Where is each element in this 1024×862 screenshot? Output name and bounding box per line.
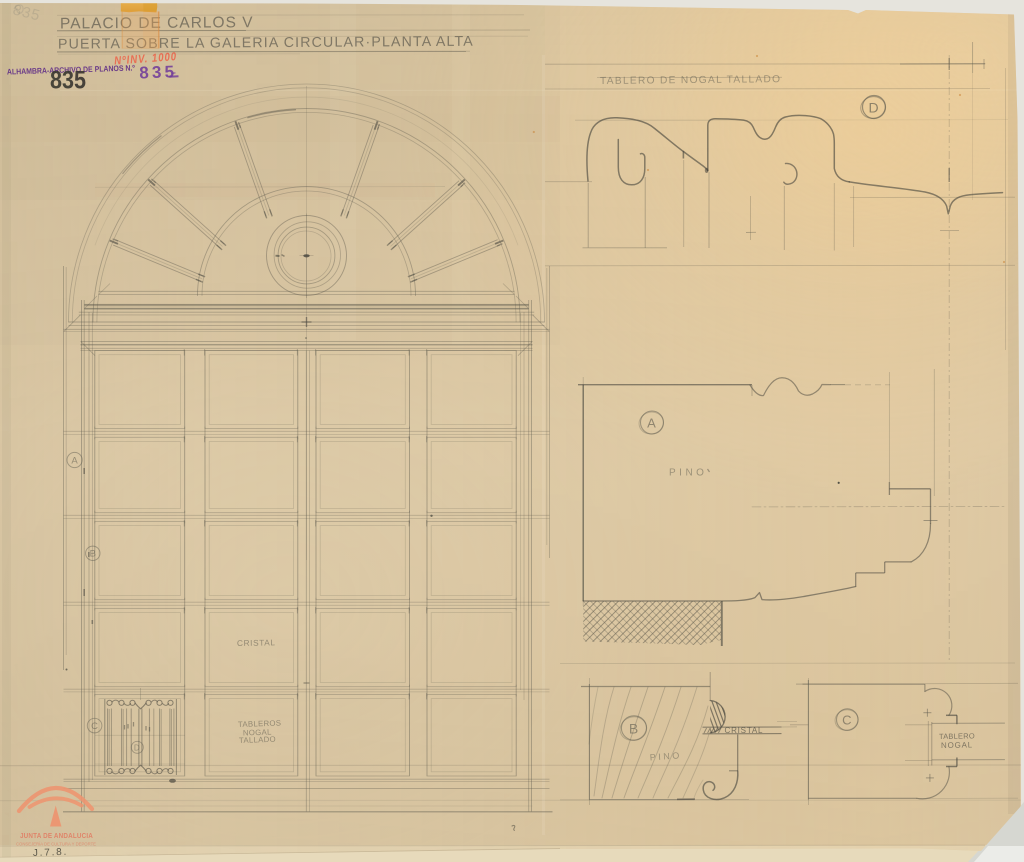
svg-text:A: A (71, 455, 78, 466)
svg-text:D: D (868, 100, 879, 116)
svg-text:CONSEJERÍA DE CULTURA Y DEPORT: CONSEJERÍA DE CULTURA Y DEPORTE (16, 842, 96, 847)
svg-text:C: C (842, 712, 852, 727)
svg-text:C: C (91, 721, 98, 732)
svg-text:PINO: PINO (669, 468, 707, 479)
svg-text:835: 835 (50, 67, 86, 95)
svg-text:TABLERO DE NOGAL TALLADO: TABLERO DE NOGAL TALLADO (600, 74, 782, 87)
svg-text:CRISTAL: CRISTAL (725, 726, 764, 735)
svg-text:JUNTA DE ANDALUCIA: JUNTA DE ANDALUCIA (20, 831, 93, 840)
svg-text:A: A (647, 416, 657, 431)
svg-text:B: B (90, 549, 96, 560)
svg-text:CRISTAL: CRISTAL (237, 637, 276, 648)
svg-text:NOGAL: NOGAL (941, 740, 973, 750)
svg-text:B: B (629, 721, 639, 737)
svg-text:D: D (134, 744, 141, 753)
svg-text:PUERTA SOBRE LA GALERIA CIRCUL: PUERTA SOBRE LA GALERIA CIRCULAR·PLANTA … (58, 34, 474, 53)
svg-text:835: 835 (139, 62, 178, 82)
svg-text:TALLADO: TALLADO (239, 735, 276, 745)
